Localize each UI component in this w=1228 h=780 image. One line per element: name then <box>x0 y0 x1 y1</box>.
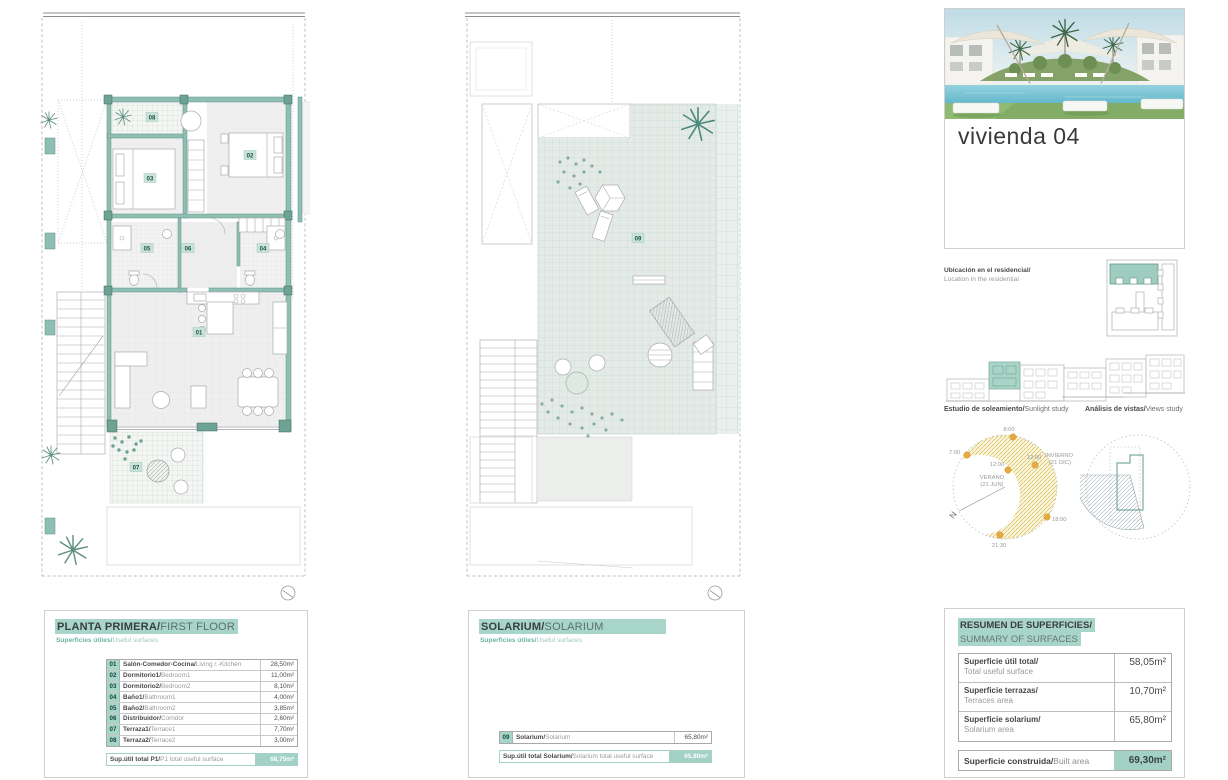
summary-title-es: RESUMEN DE SUPERFICIES/ <box>958 618 1095 632</box>
table-row: 01Salón-Comedor-Cocina/Living r.-Kitchen… <box>107 660 297 671</box>
sunlight-study-label-es: Estudio de soleamiento/ <box>944 406 1025 413</box>
total-label-es: Sup.útil total P1/ <box>110 756 160 763</box>
total-label-es: Sup.útil total Solarium/ <box>503 753 573 760</box>
north-marker-icon <box>708 586 722 600</box>
panel-title: PLANTA PRIMERA/FIRST FLOOR <box>55 619 238 634</box>
room-area: 65,80m² <box>675 732 711 743</box>
room-label-09: 09 <box>635 237 642 243</box>
surfaces-table: 01Salón-Comedor-Cocina/Living r.-Kitchen… <box>106 659 298 747</box>
panel-title-en: FIRST FLOOR <box>160 621 235 633</box>
panel-title-es: PLANTA PRIMERA/ <box>57 621 160 633</box>
room-area: 28,50m² <box>261 660 297 670</box>
total-value: 65,80m² <box>669 751 711 762</box>
views-study-label: Análisis de vistas/Views study <box>1085 406 1183 413</box>
panel-subtitle: Superficies útiles/Useful surfaces <box>56 637 158 644</box>
views-study-label-es: Análisis de vistas/ <box>1085 406 1146 413</box>
room-name-en: Solarium <box>545 734 570 741</box>
location-label: Ubicación en el residencial/ Location in… <box>944 266 1031 284</box>
room-name-es: Dormitorio1/ <box>123 672 161 679</box>
total-label-en: P1 total useful surface <box>160 756 223 763</box>
room-label-03: 03 <box>147 177 154 183</box>
time-2130: 21:30 <box>992 543 1007 549</box>
views-study-label-en: Views study <box>1146 406 1183 413</box>
room-label-07: 07 <box>133 466 140 472</box>
time-8: 8:00 <box>1003 427 1014 433</box>
first-floor-plan: 08 02 03 05 06 04 01 07 <box>37 0 310 602</box>
room-area: 2,60m² <box>261 714 297 724</box>
room-name-en: Bathroom1 <box>144 694 175 701</box>
time-12-winter: 12:00 <box>1027 455 1042 461</box>
room-name-en: Living r.-Kitchen <box>196 661 241 668</box>
room-number: 07 <box>107 725 120 735</box>
room-name-en: Terrace1 <box>151 726 176 733</box>
built-area-row: Superficie construida/Built area 69,30m² <box>958 750 1172 771</box>
room-number: 05 <box>107 703 120 713</box>
highlighted-building-block <box>1110 264 1158 284</box>
summary-row: Superficie solarium/Solarium area 65,80m… <box>959 712 1171 741</box>
summary-label-es: Superficie solarium/ <box>964 715 1114 725</box>
panel-subtitle-en: Useful surfaces <box>112 637 157 644</box>
built-area-label-en: Built area <box>1053 756 1089 766</box>
time-12-summer: 12:00 <box>990 462 1005 468</box>
sun-path-diagram: N 8:00 7:00 12:00 VERANO (21 JUN) 12:00 … <box>935 423 1085 568</box>
room-area: 8,10m² <box>261 682 297 692</box>
location-label-es: Ubicación en el residencial/ <box>944 266 1031 275</box>
table-row: 02Dormitorio1/Bedroom111,00m² <box>107 671 297 682</box>
room-label-01: 01 <box>196 331 203 337</box>
solarium-plan: 09 <box>462 0 743 602</box>
panel-subtitle-es: Superficies útiles/ <box>56 637 112 644</box>
panel-title-es: SOLARIUM/ <box>481 621 545 633</box>
summary-label-en: Terraces area <box>964 696 1114 706</box>
summary-value: 65,80m² <box>1114 712 1171 741</box>
summer-label: VERANO <box>980 475 1005 481</box>
room-name-es: Solarium/ <box>516 734 545 741</box>
summary-row: Superficie terrazas/Terraces area 10,70m… <box>959 683 1171 712</box>
room-number: 03 <box>107 682 120 692</box>
sunlight-study-label-en: Sunlight study <box>1025 406 1069 413</box>
built-area-value: 69,30m² <box>1114 751 1171 770</box>
room-area: 7,70m² <box>261 725 297 735</box>
room-name-es: Terraza1/ <box>123 726 151 733</box>
time-7: 7:00 <box>949 450 960 456</box>
site-plan-diagram <box>1106 258 1182 342</box>
table-row: 05Baño2/Bathroom23,85m² <box>107 703 297 714</box>
room-label-08: 08 <box>149 116 156 122</box>
solarium-surfaces-card: SOLARIUM/SOLARIUM Superficies útiles/Use… <box>468 610 745 778</box>
views-sector <box>1080 475 1144 530</box>
panel-title-en: SOLARIUM <box>545 621 604 633</box>
panel-title: SOLARIUM/SOLARIUM <box>479 619 666 634</box>
summary-label-es: Superficie terrazas/ <box>964 686 1114 696</box>
summary-table: Superficie útil total/Total useful surfa… <box>958 653 1172 742</box>
panel-subtitle-en: Useful surfaces <box>536 637 581 644</box>
room-label-05: 05 <box>144 247 151 253</box>
winter-date: (21 DIC) <box>1049 460 1071 466</box>
sunlight-study-label: Estudio de soleamiento/Sunlight study <box>944 406 1069 413</box>
room-area: 11,00m² <box>261 671 297 681</box>
summary-card: RESUMEN DE SUPERFICIES/ SUMMARY OF SURFA… <box>944 608 1185 778</box>
table-row: 08Terraza2/Terrace23,00m² <box>107 736 297 747</box>
summary-value: 58,05m² <box>1114 654 1171 682</box>
summary-row: Superficie útil total/Total useful surfa… <box>959 654 1171 683</box>
resort-photo <box>945 9 1184 119</box>
summer-date: (21 JUN) <box>980 482 1003 488</box>
views-diagram <box>1080 423 1228 568</box>
summary-value: 10,70m² <box>1114 683 1171 711</box>
room-area: 4,00m² <box>261 692 297 702</box>
room-number: 09 <box>500 732 513 743</box>
unit-card: vivienda 04 <box>944 8 1185 249</box>
north-marker-icon <box>281 586 295 600</box>
summary-label-en: Total useful surface <box>964 667 1114 677</box>
summary-label-en: Solarium area <box>964 725 1114 735</box>
room-label-04: 04 <box>260 247 267 253</box>
room-number: 06 <box>107 714 120 724</box>
summary-label-es: Superficie útil total/ <box>964 657 1114 667</box>
surfaces-table: 09Solarium/Solarium65,80m² <box>499 731 712 744</box>
room-name-en: Bedroom2 <box>161 683 191 690</box>
time-18: 18:00 <box>1052 517 1067 523</box>
staircase <box>57 292 105 454</box>
highlighted-unit <box>989 362 1020 389</box>
room-number: 02 <box>107 671 120 681</box>
staircase <box>480 340 537 503</box>
table-row: 04Baño1/Bathroom14,00m² <box>107 692 297 703</box>
corridor-floor <box>181 222 237 288</box>
first-floor-surfaces-card: PLANTA PRIMERA/FIRST FLOOR Superficies ú… <box>44 610 308 778</box>
room-label-02: 02 <box>247 154 254 160</box>
room-number: 04 <box>107 692 120 702</box>
room-area: 3,85m² <box>261 703 297 713</box>
table-row: 09Solarium/Solarium65,80m² <box>500 732 711 743</box>
room-area: 3,00m² <box>261 736 297 747</box>
room-label-06: 06 <box>185 247 192 253</box>
room-number: 08 <box>107 736 120 747</box>
table-row: 06Distribuidor/Corridor2,60m² <box>107 714 297 725</box>
room-name-es: Salón-Comedor-Cocina/ <box>123 661 196 668</box>
summary-title-en: SUMMARY OF SURFACES <box>958 632 1081 646</box>
courtyard-void <box>58 100 107 243</box>
table-row: 07Terraza1/Terrace17,70m² <box>107 725 297 736</box>
room-name-en: Corridor <box>161 715 184 722</box>
room-name-es: Dormitorio2/ <box>123 683 161 690</box>
winter-label: INVIERNO <box>1045 453 1074 459</box>
room-name-en: Bathroom2 <box>144 705 175 712</box>
table-row: 03Dormitorio2/Bedroom28,10m² <box>107 682 297 693</box>
room-name-es: Baño2/ <box>123 705 144 712</box>
total-row: Sup.útil total P1/P1 total useful surfac… <box>106 753 298 766</box>
location-label-en: Location in the residential <box>944 275 1031 284</box>
panel-subtitle-es: Superficies útiles/ <box>480 637 536 644</box>
total-label-en: Solarium total useful surface <box>573 753 654 760</box>
total-row: Sup.útil total Solarium/Solarium total u… <box>499 750 712 763</box>
room-name-en: Bedroom1 <box>161 672 191 679</box>
unit-title: vivienda 04 <box>958 123 1080 150</box>
room-name-es: Distribuidor/ <box>123 715 161 722</box>
built-area-label-es: Superficie construida/ <box>964 756 1053 766</box>
room-name-en: Terrace2 <box>151 737 176 744</box>
room-name-es: Baño1/ <box>123 694 144 701</box>
room-name-es: Terraza2/ <box>123 737 151 744</box>
panel-subtitle: Superficies útiles/Useful surfaces <box>480 637 582 644</box>
room-number: 01 <box>107 660 120 670</box>
total-value: 68,75m² <box>255 754 297 765</box>
elevation-diagram <box>944 351 1185 404</box>
